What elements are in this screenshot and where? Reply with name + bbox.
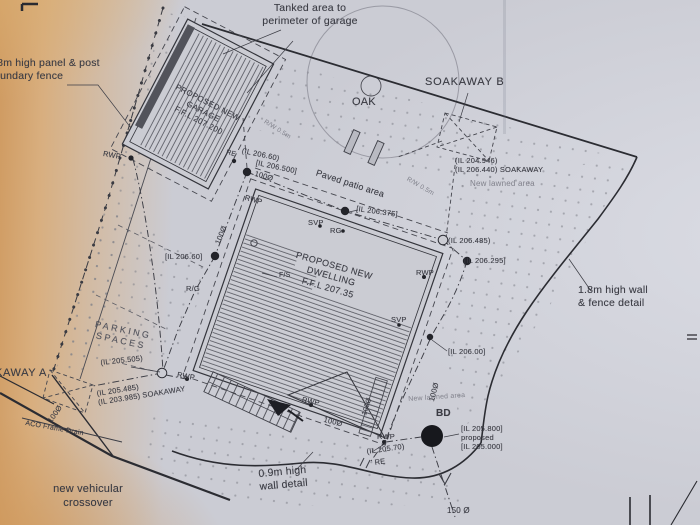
label-il-206-00: [IL 206.00] bbox=[448, 347, 485, 356]
label-il-206-485: (IL 206.485) bbox=[448, 236, 491, 245]
label-dia150: 150 Ø bbox=[447, 506, 470, 516]
bd-bottom-drain-icon bbox=[421, 425, 443, 447]
inspection-chamber-icon bbox=[157, 368, 167, 378]
label-bd: BD bbox=[436, 408, 451, 421]
label-lawn-ne: New lawned area bbox=[470, 179, 535, 189]
label-panel-fence: 1.8m high panel & post boundary fence bbox=[0, 57, 100, 83]
label-bd-levels: [IL 205.800] proposed [IL 205.000] bbox=[461, 424, 503, 451]
label-soakaway-b-levels: (IL 204.946) (IL 206.440) SOAKAWAY bbox=[455, 156, 543, 175]
label-re-south: RE bbox=[374, 456, 386, 467]
label-wall-09-detail: 0.9m high wall detail bbox=[258, 464, 308, 494]
label-oak: OAK bbox=[352, 96, 376, 110]
label-svp-east: SVP bbox=[391, 315, 407, 324]
site-plan-drawing bbox=[0, 0, 700, 525]
label-crossover: new vehicular crossover bbox=[53, 483, 123, 511]
rwp-dot bbox=[128, 155, 133, 160]
label-tanked-area: Tanked area to perimeter of garage bbox=[252, 2, 368, 28]
label-il-206-60-west: [IL 206.60] bbox=[165, 252, 202, 261]
label-soakaway-b: SOAKAWAY B bbox=[425, 76, 505, 90]
label-soakaway-a: SOAKAWAY A bbox=[0, 367, 47, 381]
label-rwp-se: RWP bbox=[377, 432, 395, 441]
label-rg-gully: R/G bbox=[186, 284, 200, 293]
label-rg-north: RG bbox=[330, 226, 342, 235]
label-il-206-295: [IL 206.295] bbox=[464, 256, 506, 265]
soakaway-a-box bbox=[43, 370, 93, 413]
inspection-chamber-icon bbox=[438, 235, 448, 245]
label-rwp-east: RWP bbox=[416, 268, 434, 277]
manhole-icon bbox=[341, 207, 349, 215]
manhole-icon bbox=[243, 168, 251, 176]
manhole-icon bbox=[211, 252, 219, 260]
label-fs: F/S bbox=[279, 272, 291, 281]
label-wall-fence-detail: 1.8m high wall & fence detail bbox=[578, 284, 648, 310]
paper-crease bbox=[503, 0, 506, 134]
manhole-icon bbox=[427, 334, 433, 340]
site-plan-photo: Tanked area to perimeter of garage 1.8m … bbox=[0, 0, 700, 525]
label-svp-north: SVP bbox=[308, 218, 324, 227]
